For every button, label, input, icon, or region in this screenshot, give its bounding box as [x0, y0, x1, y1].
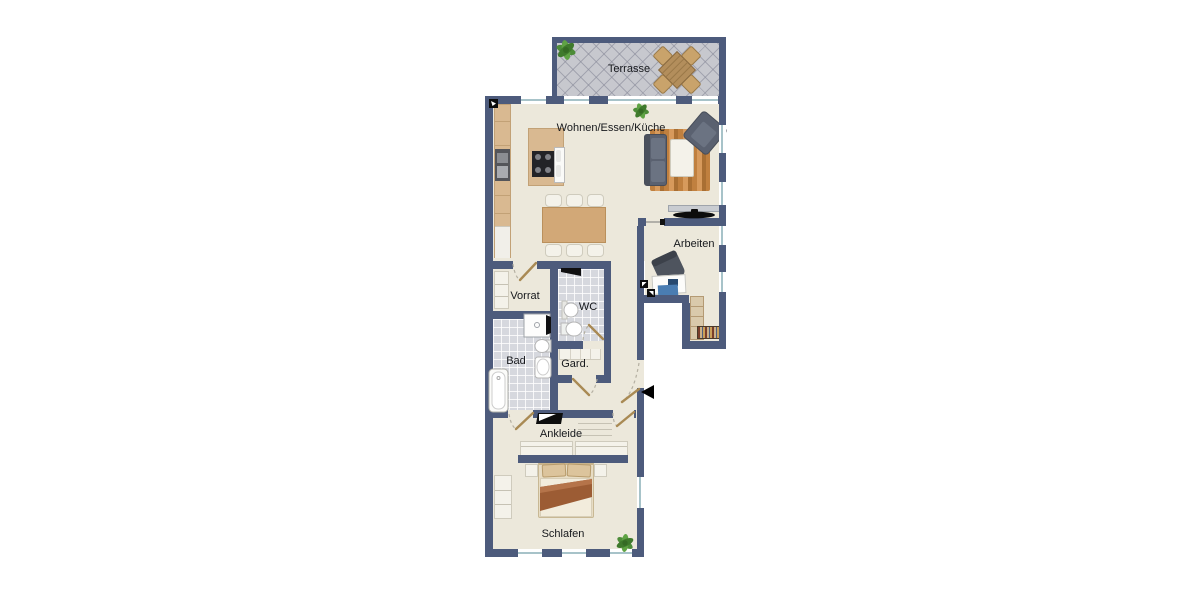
door-arc: [583, 325, 589, 340]
entrance-door-leaf: [622, 389, 639, 402]
plant-icon: [615, 534, 634, 553]
room-label-terrasse: Terrasse: [608, 63, 650, 75]
door-leaf: [589, 325, 603, 339]
plant-icon: [555, 39, 577, 60]
toilet: [535, 340, 549, 353]
door-arc: [589, 379, 597, 395]
door-arc: [513, 264, 520, 280]
washbasin-bowl: [537, 359, 549, 375]
door-arc: [613, 413, 617, 426]
plan-overlay: [0, 0, 1200, 600]
bed-blanket-stripe: [540, 479, 592, 511]
door-leaf: [617, 412, 634, 426]
plant-center: [622, 540, 627, 545]
toilet: [566, 322, 582, 336]
room-label-gard: Gard.: [561, 358, 589, 370]
wc-shelf: [561, 268, 581, 276]
room-label-schlafen: Schlafen: [542, 528, 585, 540]
wc-sink: [564, 303, 578, 317]
shower-panel: [546, 315, 551, 335]
room-label-wohnen: Wohnen/Essen/Küche: [557, 122, 666, 134]
door-leaves: [516, 263, 639, 429]
door-arc: [509, 414, 516, 429]
door-leaf: [516, 413, 533, 429]
room-label-vorrat: Vorrat: [510, 290, 539, 302]
sliding-door-stop: [660, 219, 665, 225]
door-leaf: [573, 379, 589, 395]
door-swing-arcs: [509, 264, 639, 429]
plant-icon: [633, 102, 650, 119]
plan-symbol-icon: [489, 99, 498, 108]
terrace-table-set: [639, 32, 715, 108]
entrance-arrow-icon: [641, 385, 654, 399]
plant-center: [563, 47, 569, 53]
office-symbol-icons: [640, 280, 655, 297]
bathtub-inner: [492, 372, 505, 409]
room-label-ankleide: Ankleide: [540, 428, 582, 440]
room-label-bad: Bad: [506, 355, 526, 367]
dressing-sideboard: [536, 413, 563, 424]
tv-mount: [691, 209, 698, 213]
room-label-wc: WC: [579, 301, 597, 313]
floor-plan: Terrasse Wohnen/Essen/Küche Arbeiten Vor…: [0, 0, 1200, 600]
plant-center: [639, 109, 644, 114]
room-label-arbeiten: Arbeiten: [674, 238, 715, 250]
door-leaf: [520, 263, 536, 280]
tv-icon: [673, 209, 715, 218]
